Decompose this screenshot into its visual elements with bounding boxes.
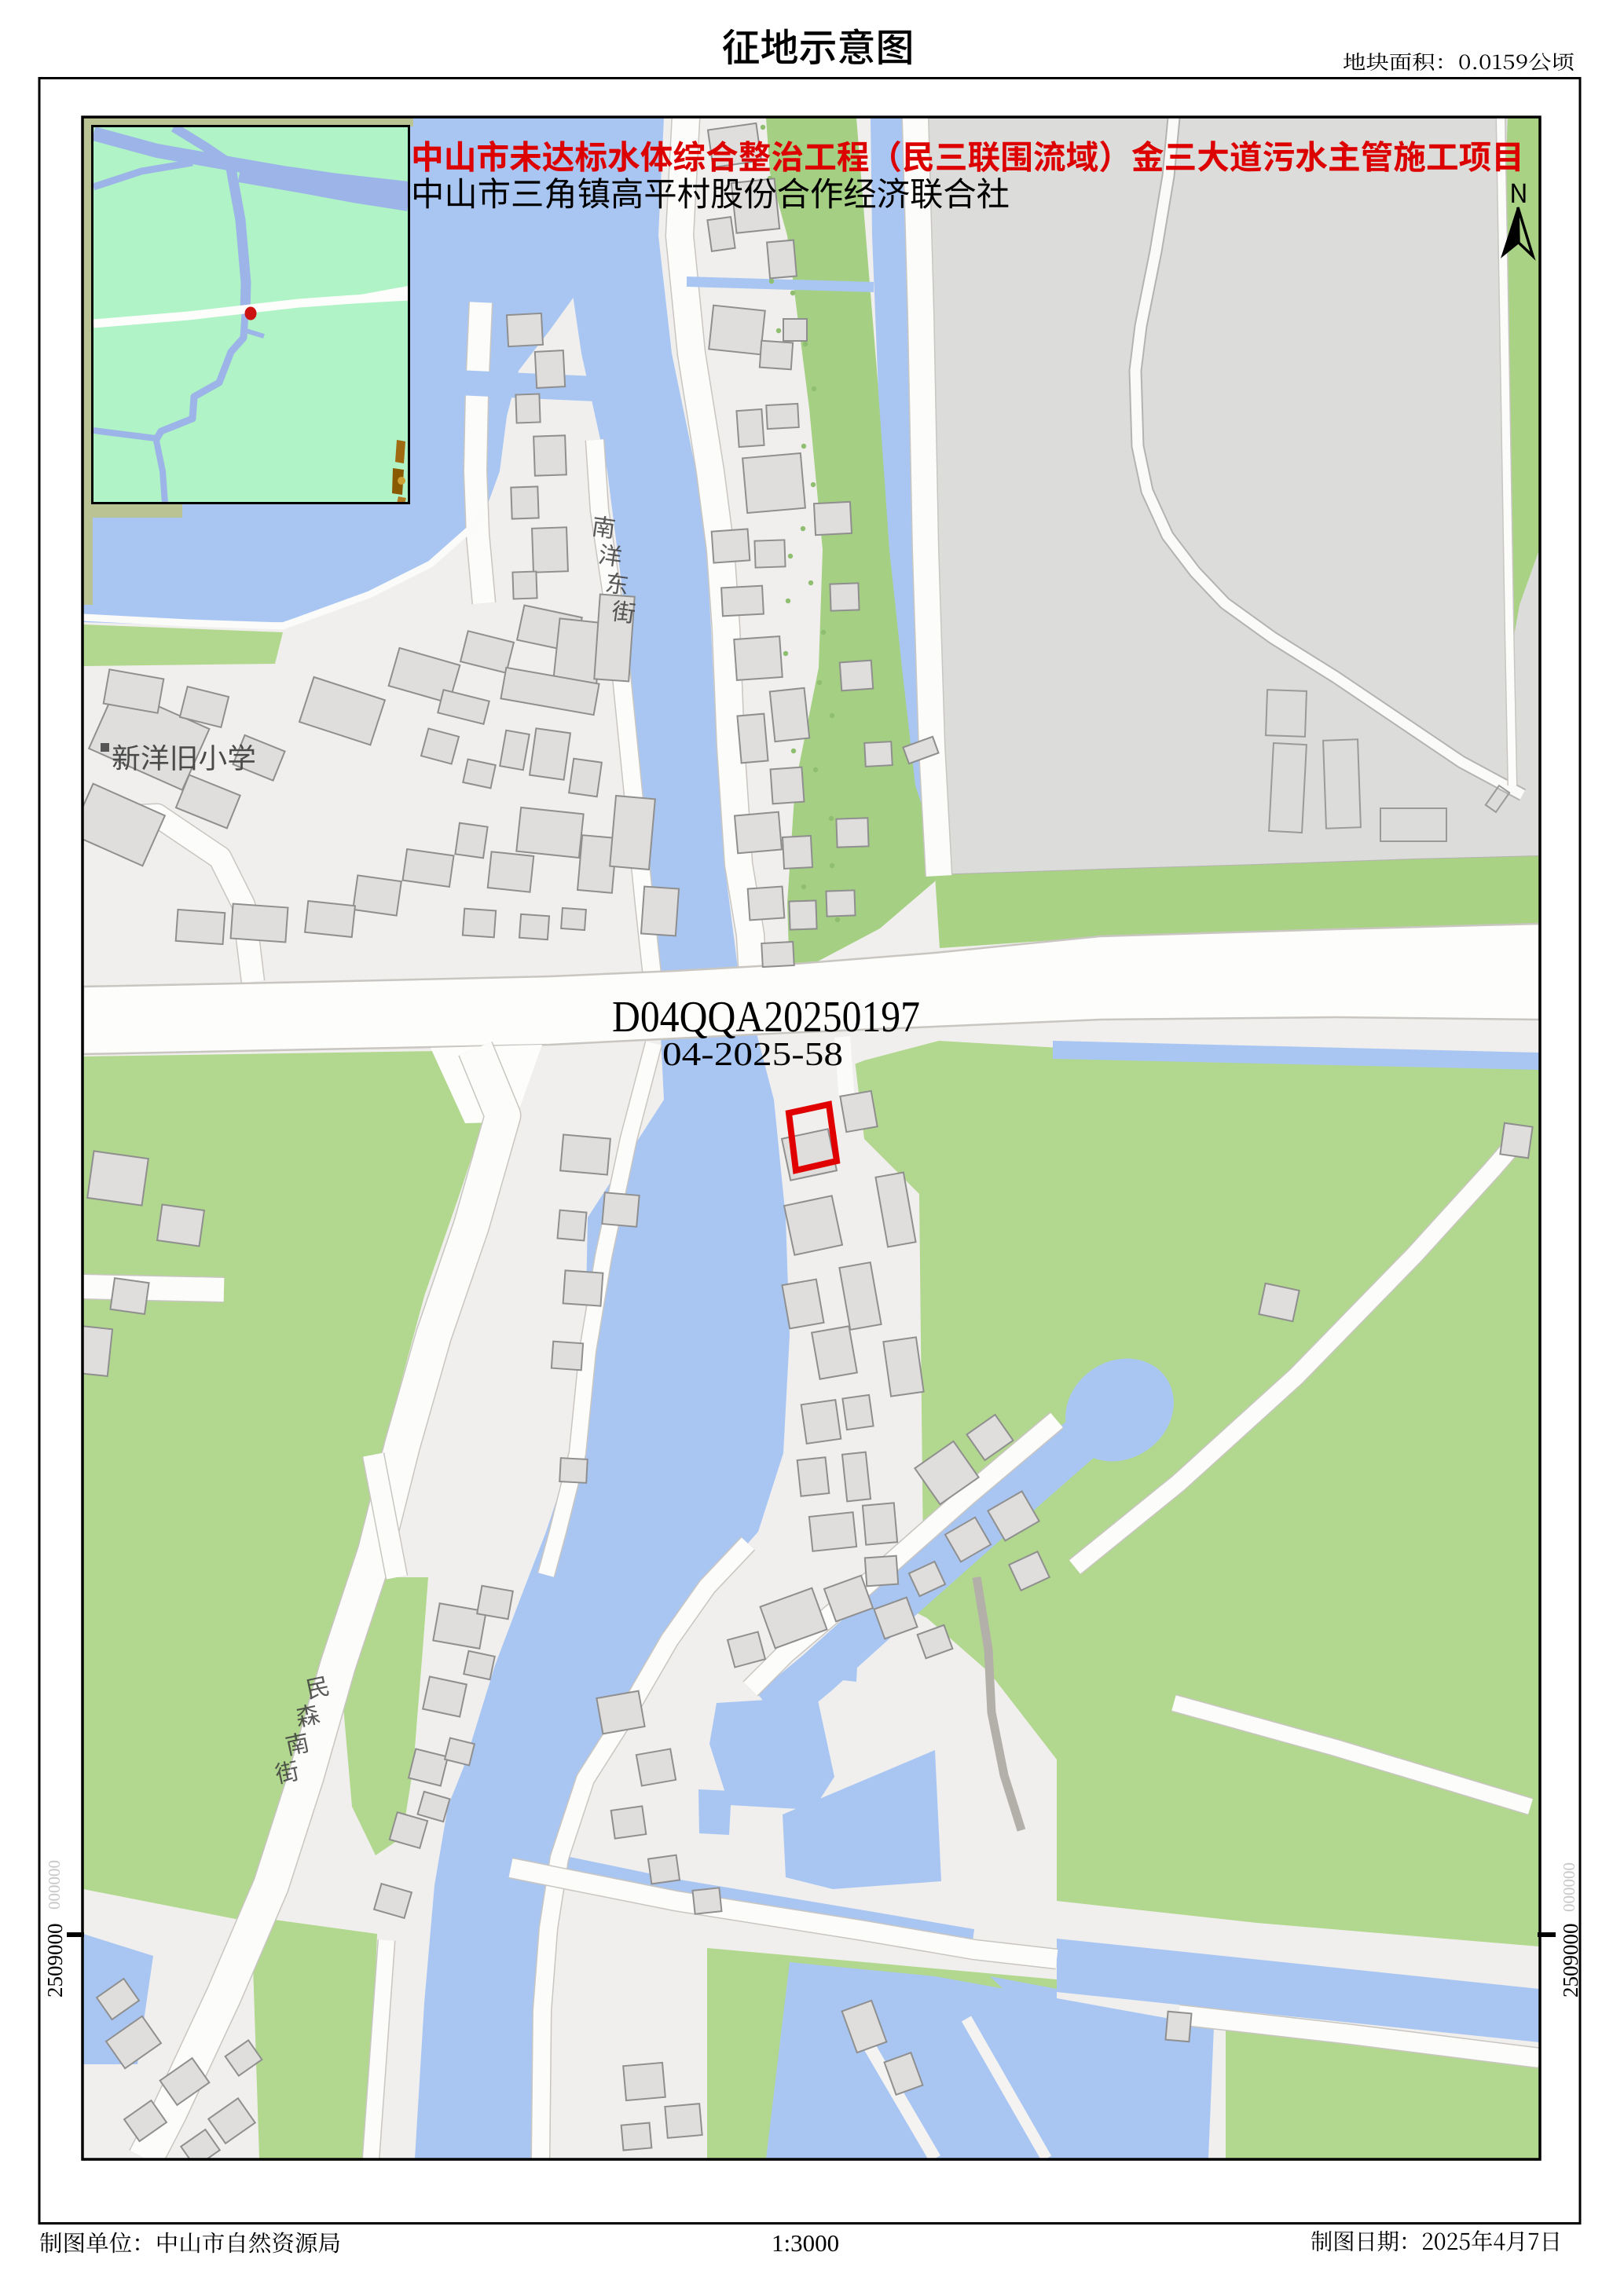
svg-text:2509000: 2509000 bbox=[43, 1924, 67, 1998]
svg-text:000000: 000000 bbox=[45, 1860, 64, 1910]
svg-text:000000: 000000 bbox=[1560, 1862, 1578, 1912]
svg-text:04-2025-58: 04-2025-58 bbox=[662, 1037, 843, 1073]
svg-text:1:3000: 1:3000 bbox=[772, 2229, 839, 2257]
svg-text:D04QQA20250197: D04QQA20250197 bbox=[612, 993, 920, 1042]
